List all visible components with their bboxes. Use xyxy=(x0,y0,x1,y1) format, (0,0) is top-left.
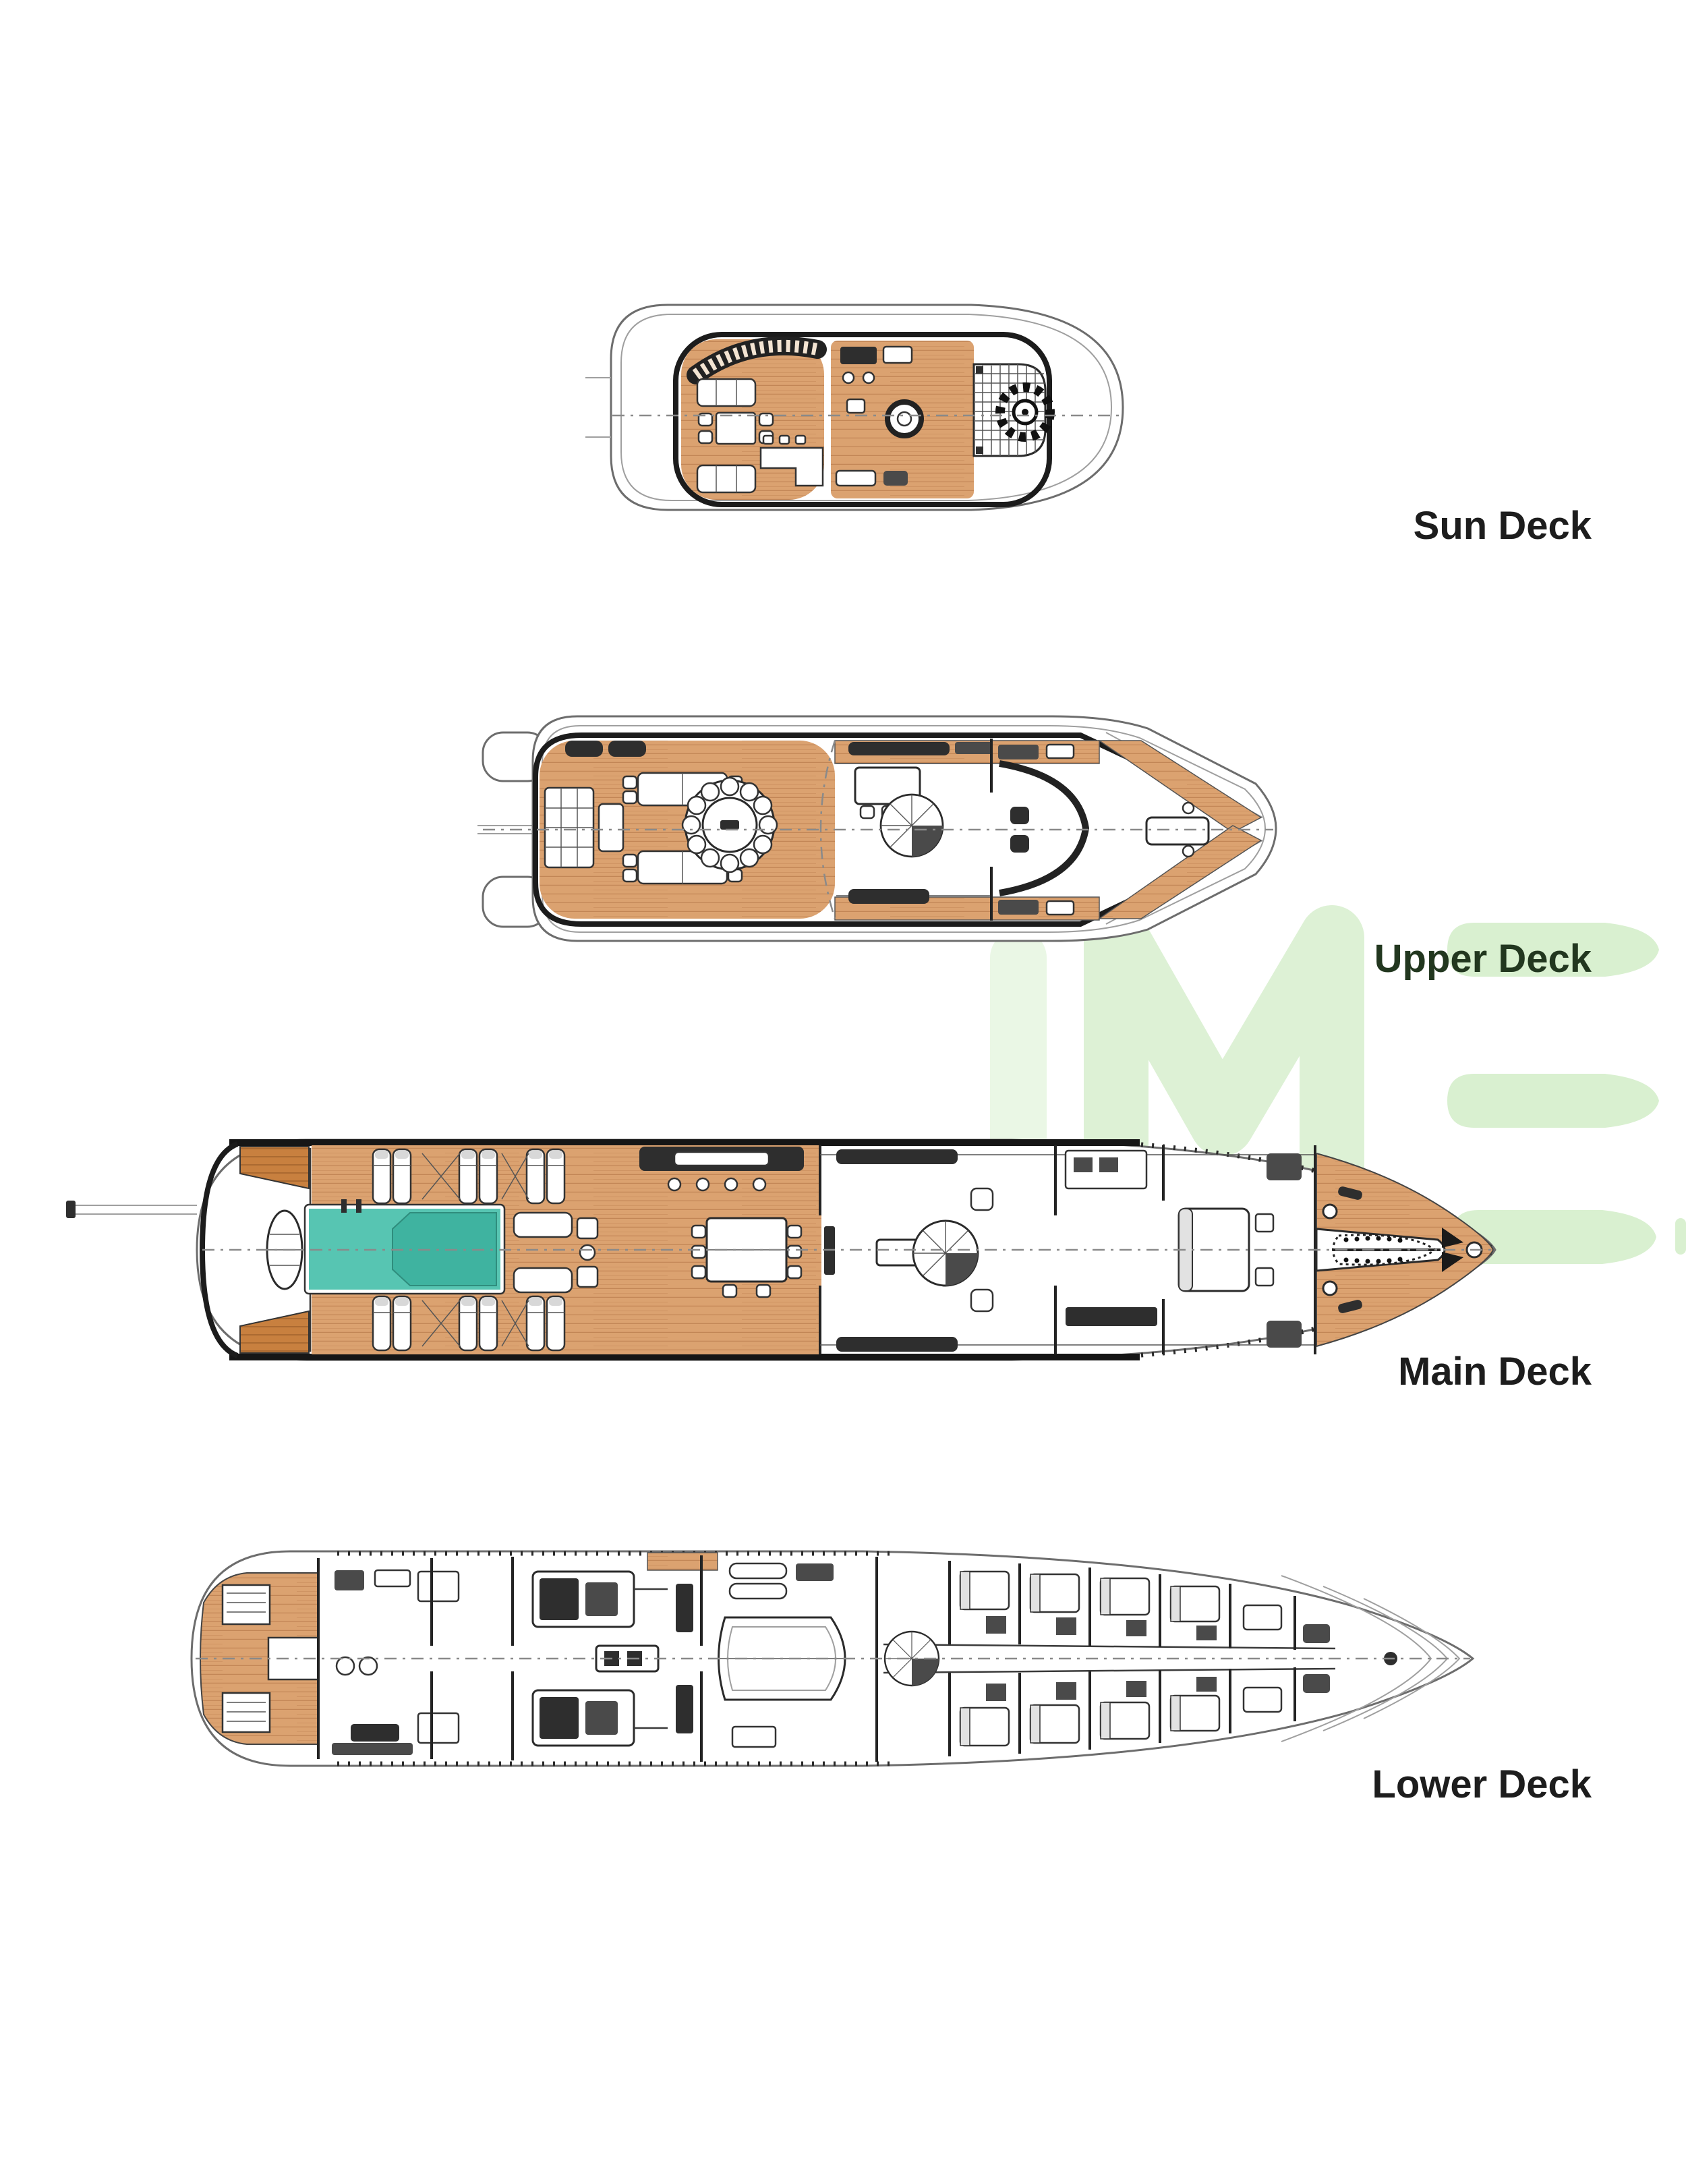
upper-deck-plan xyxy=(477,716,1276,941)
sun-deck-plan xyxy=(585,305,1123,510)
sun-deck-label: Sun Deck xyxy=(1120,503,1592,548)
upper-deck-label: Upper Deck xyxy=(1120,936,1592,981)
lower-deck-plan xyxy=(192,1551,1473,1766)
main-deck-label: Main Deck xyxy=(1120,1349,1592,1394)
main-deck-plan xyxy=(66,1140,1495,1360)
deck-plans-canvas xyxy=(0,0,1686,2184)
lower-deck-label: Lower Deck xyxy=(1120,1762,1592,1807)
yacht-deck-plans-page: Sun Deck Upper Deck Main Deck Lower Deck… xyxy=(0,0,1686,2184)
